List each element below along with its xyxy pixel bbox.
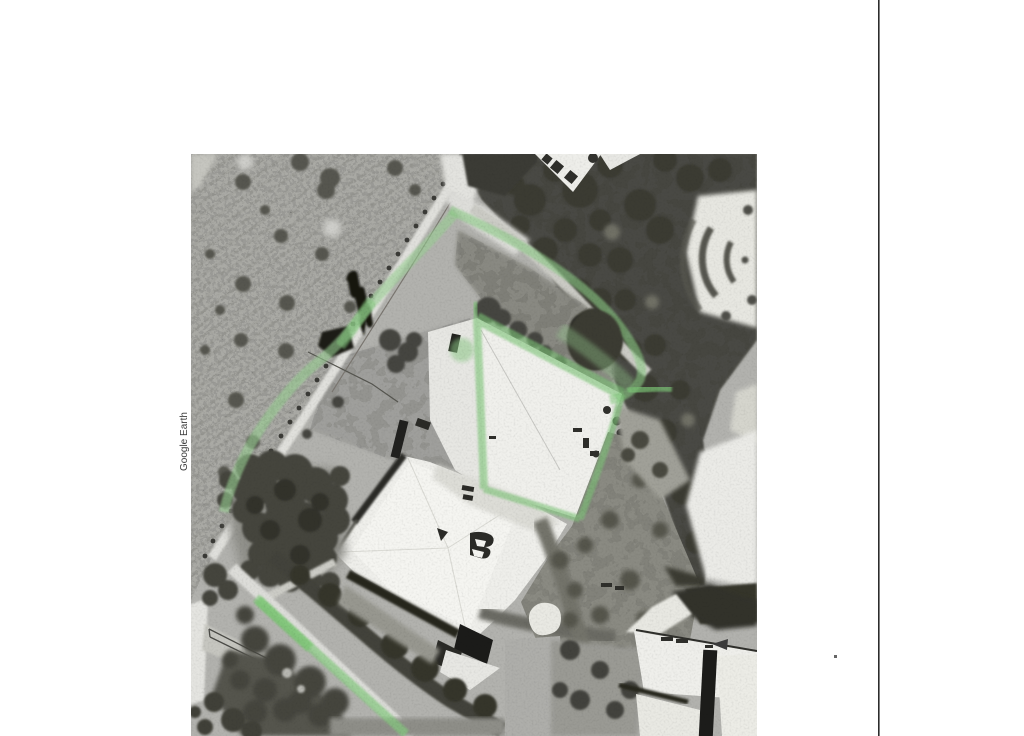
svg-text:Google Earth: Google Earth (179, 412, 190, 471)
